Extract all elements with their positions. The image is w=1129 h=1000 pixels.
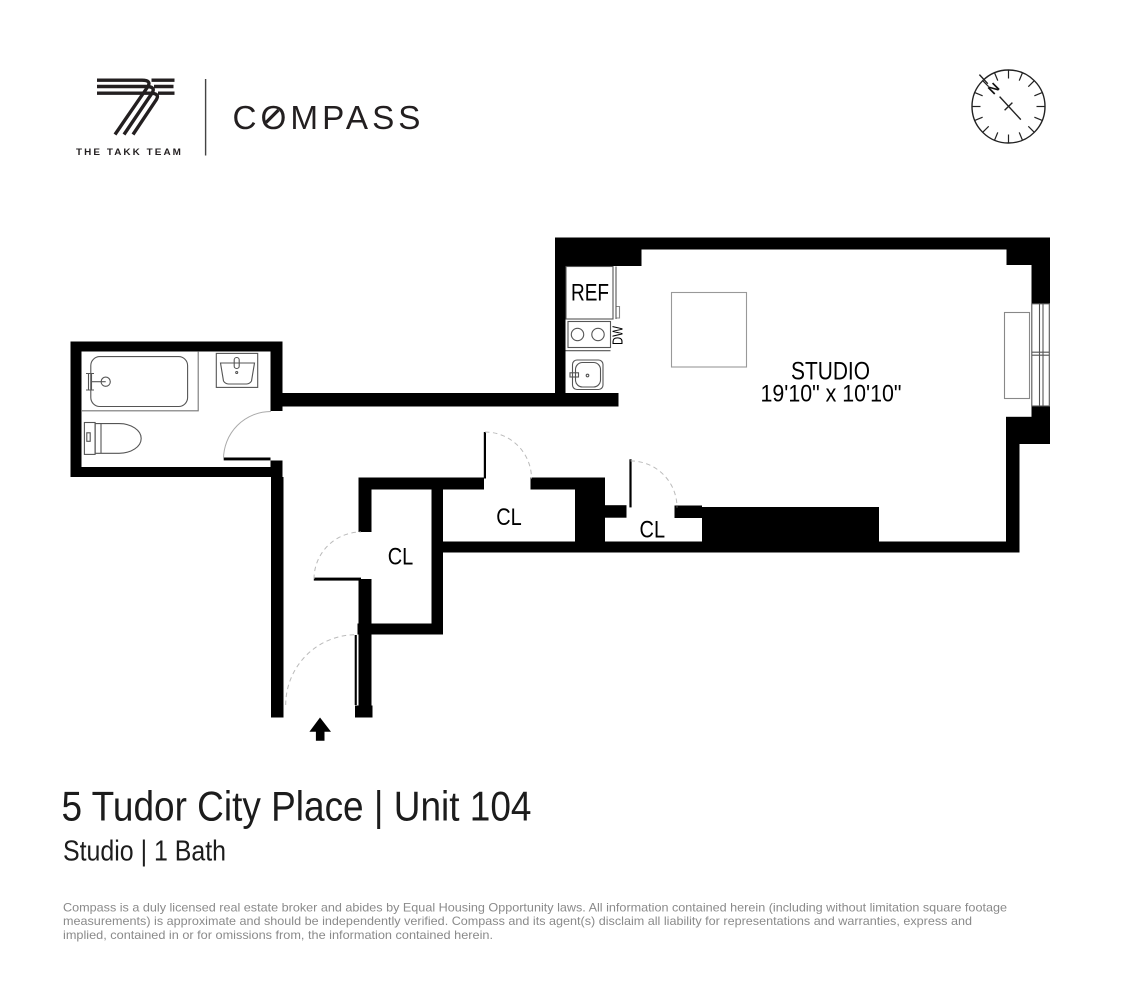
svg-text:CL: CL <box>640 517 666 544</box>
svg-text:DW: DW <box>610 325 627 345</box>
svg-text:CL: CL <box>388 544 414 571</box>
svg-text:N: N <box>985 80 1003 98</box>
svg-text:REF: REF <box>571 280 609 307</box>
svg-text:19'10" x 10'10": 19'10" x 10'10" <box>761 381 902 408</box>
svg-text:implied, contained in or for o: implied, contained in or for omissions f… <box>63 928 493 942</box>
svg-text:measurements) is approximate a: measurements) is approximate and should … <box>63 914 972 928</box>
svg-text:COMPASS: COMPASS <box>233 99 425 136</box>
svg-text:CL: CL <box>496 504 522 531</box>
svg-text:5 Tudor City Place | Unit 104: 5 Tudor City Place | Unit 104 <box>62 782 532 829</box>
svg-text:Studio | 1 Bath: Studio | 1 Bath <box>63 836 226 868</box>
svg-text:THE TAKK TEAM: THE TAKK TEAM <box>76 147 183 158</box>
svg-text:Compass is a duly licensed rea: Compass is a duly licensed real estate b… <box>63 900 1007 914</box>
